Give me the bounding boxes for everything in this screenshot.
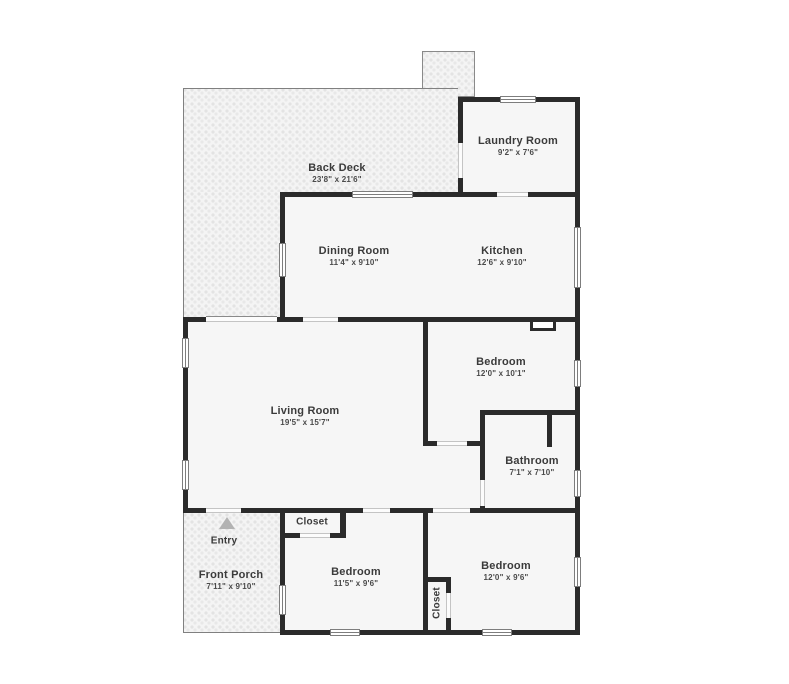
door-opening [433,508,470,513]
room-name: Living Room [271,405,340,417]
window [482,629,512,636]
room-label-dining: Dining Room 11'4" x 9'10" [319,245,390,267]
room-dims: 12'0" x 10'1" [476,369,526,378]
door-opening [497,192,528,197]
wall [575,387,580,470]
wall [280,615,285,635]
wall [280,630,330,635]
room-name: Laundry Room [478,135,558,147]
room-name: Front Porch [199,569,264,581]
entry-arrow-icon [219,517,235,529]
room-name: Kitchen [477,245,527,257]
wall [423,317,428,446]
room-name: Bathroom [505,455,559,467]
room-label-bedroom-main: Bedroom 12'0" x 10'1" [476,356,526,378]
room-label-back-deck: Back Deck 23'8" x 21'6" [308,162,365,184]
fireplace-flue [530,322,556,331]
wall [183,317,188,338]
room-dims: 19'5" x 15'7" [271,418,340,427]
window [500,96,536,103]
wall [183,368,188,460]
wall [480,410,580,415]
room-label-bathroom: Bathroom 7'1" x 7'10" [505,455,559,477]
wall [458,97,463,143]
window [182,338,189,368]
door-opening [300,533,330,538]
window [352,191,413,198]
wall [547,415,552,447]
wall [528,192,580,197]
porch-edge-left [183,513,184,633]
room-label-bedroom-right: Bedroom 12'0" x 9'6" [481,560,531,582]
wall [423,508,428,635]
wall [280,277,285,322]
wall [480,506,485,513]
window [574,360,581,387]
wall [575,497,580,557]
door-opening [363,508,390,513]
room-label-entry: Entry [211,536,238,547]
room-dims: 11'5" x 9'6" [331,579,381,588]
room-name: Back Deck [308,162,365,174]
room-label-kitchen: Kitchen 12'6" x 9'10" [477,245,527,267]
door-opening [206,316,277,322]
room-label-front-porch: Front Porch 7'11" x 9'10" [199,569,264,591]
room-name: Bedroom [331,566,381,578]
room-dims: 12'6" x 9'10" [477,258,527,267]
room-label-closet-hall: Closet [296,517,328,528]
back-deck-area [183,192,280,321]
wall [340,513,346,538]
door-opening [303,317,338,322]
porch-edge-bottom [183,632,280,633]
wall [575,288,580,360]
window [279,243,286,277]
room-dims: 12'0" x 9'6" [481,573,531,582]
deck-edge-top [183,88,458,89]
wall [480,410,485,480]
wall [413,192,497,197]
room-name: Bedroom [476,356,526,368]
living-hall-floor [183,317,580,513]
wall [280,192,352,197]
deck-edge-left [183,88,184,317]
door-opening [446,593,451,618]
room-name: Closet [432,587,443,619]
door-opening [458,143,463,178]
wall [446,618,451,635]
floor-plan-canvas: Back Deck 23'8" x 21'6" Laundry Room 9'2… [0,0,789,684]
wall [458,178,463,197]
room-label-closet-back: Closet [432,587,443,619]
room-dims: 23'8" x 21'6" [308,175,365,184]
room-dims: 9'2" x 7'6" [478,148,558,157]
room-name: Closet [296,517,328,528]
wall [575,97,580,227]
room-name: Dining Room [319,245,390,257]
room-label-laundry: Laundry Room 9'2" x 7'6" [478,135,558,157]
room-dims: 11'4" x 9'10" [319,258,390,267]
wall [360,630,482,635]
room-dims: 7'1" x 7'10" [505,468,559,477]
wall [575,587,580,635]
wall [446,582,451,593]
window [574,557,581,587]
window [574,227,581,288]
room-dims: 7'11" x 9'10" [199,582,264,591]
wall [512,630,580,635]
wall [470,508,580,513]
wall [280,508,285,585]
room-name: Bedroom [481,560,531,572]
room-name: Entry [211,536,238,547]
front-door-opening [206,508,241,513]
window [182,460,189,490]
room-label-living: Living Room 19'5" x 15'7" [271,405,340,427]
door-opening [437,441,467,446]
window [574,470,581,497]
wall [183,490,188,513]
room-label-bedroom-mid: Bedroom 11'5" x 9'6" [331,566,381,588]
door-opening [480,480,485,506]
wall [280,192,285,243]
wall [285,533,300,538]
window [279,585,286,615]
window [330,629,360,636]
